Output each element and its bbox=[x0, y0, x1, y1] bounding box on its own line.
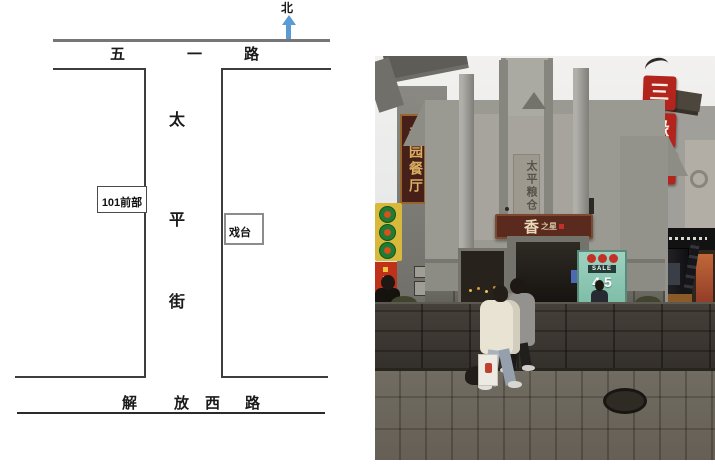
left-pedestrian-head bbox=[381, 275, 395, 290]
facade-left-slope bbox=[403, 100, 425, 146]
jiefang-road-char-1: 解 bbox=[122, 392, 137, 413]
manhole-cover bbox=[603, 388, 647, 414]
figure-canvas: 北 五 一 路 太 平 街 101前部 戏台 解 放 西 路 bbox=[0, 0, 715, 468]
jiefang-road-char-4: 路 bbox=[245, 392, 260, 413]
triangle-emblem bbox=[522, 92, 546, 109]
display-window-lights bbox=[469, 289, 472, 292]
entrance-sign-main-char: 香 bbox=[524, 216, 539, 237]
facade-rib-right bbox=[544, 60, 553, 225]
pedestrian1-head bbox=[493, 285, 508, 302]
kiosk-screen bbox=[667, 263, 680, 285]
label-box-stage: 戏台 bbox=[224, 213, 264, 245]
left-block-right-edge bbox=[144, 68, 146, 378]
entrance-sign-small-chars: 之星 bbox=[541, 221, 557, 232]
jiefang-road-char-2: 放 bbox=[174, 392, 189, 413]
pedestrian1-tote-bag bbox=[478, 354, 498, 386]
green-circle-char-3 bbox=[379, 242, 396, 259]
right-shop-sign-text bbox=[663, 237, 707, 240]
pedestrian2-shoe-back bbox=[522, 365, 535, 371]
wuyi-road-char-2: 一 bbox=[187, 43, 202, 64]
pedestrian1-shoe-back bbox=[508, 381, 522, 388]
jiefang-road-char-3: 西 bbox=[205, 392, 220, 413]
poster-logo-circles bbox=[586, 254, 619, 263]
label-box-101-front: 101前部 bbox=[97, 186, 147, 213]
shop-poster bbox=[696, 254, 713, 308]
poster-circle-2 bbox=[598, 254, 607, 263]
jiefang-road-line bbox=[17, 412, 325, 414]
red-seal-mark bbox=[559, 224, 564, 229]
north-label: 北 bbox=[281, 0, 293, 16]
facade-rib-left bbox=[499, 60, 508, 225]
right-block-top-edge bbox=[221, 68, 331, 70]
sign-lamp-dot bbox=[505, 207, 509, 211]
poster-sale-label: SALE bbox=[588, 265, 616, 273]
left-block-top-edge bbox=[53, 68, 146, 70]
wuyi-road-line bbox=[53, 39, 330, 42]
poster-viewer-head bbox=[595, 280, 604, 291]
poster-circle-1 bbox=[587, 254, 596, 263]
wuyi-road-char-1: 五 bbox=[110, 43, 125, 64]
green-circle-char-1 bbox=[379, 206, 396, 223]
yellow-lightbox-sign bbox=[375, 203, 402, 261]
right-block-left-edge bbox=[221, 68, 223, 378]
taiping-street-char-3: 街 bbox=[169, 288, 185, 312]
carved-inscription: 太平粮仓 bbox=[513, 154, 540, 216]
pedestrian2-head bbox=[510, 278, 525, 294]
pedestrian1-jacket bbox=[480, 300, 520, 354]
paving-dark-band bbox=[375, 302, 715, 370]
right-block-bottom-edge bbox=[221, 376, 328, 378]
north-arrow-shaft bbox=[286, 24, 291, 40]
right-wall-panel bbox=[685, 140, 715, 232]
facade-right-slope bbox=[668, 136, 688, 176]
left-block-bottom-edge bbox=[15, 376, 146, 378]
poster-circle-3 bbox=[609, 254, 618, 263]
street-photo: 三 缘 堂 沁园餐厅 bbox=[375, 56, 715, 460]
tote-bag-print bbox=[485, 363, 492, 373]
street-map-sketch: 北 五 一 路 太 平 街 101前部 戏台 解 放 西 路 bbox=[0, 0, 368, 468]
taiping-street-char-2: 平 bbox=[169, 206, 185, 230]
snack-sign-characters bbox=[383, 267, 388, 272]
paving-foreground bbox=[375, 368, 715, 460]
wall-circle-motif bbox=[690, 170, 708, 188]
taiping-street-char-1: 太 bbox=[169, 106, 185, 130]
facade-pilaster-left bbox=[459, 74, 474, 260]
wuyi-road-char-3: 路 bbox=[244, 43, 259, 64]
green-circle-char-2 bbox=[379, 224, 396, 241]
sign-lamp bbox=[589, 198, 594, 214]
